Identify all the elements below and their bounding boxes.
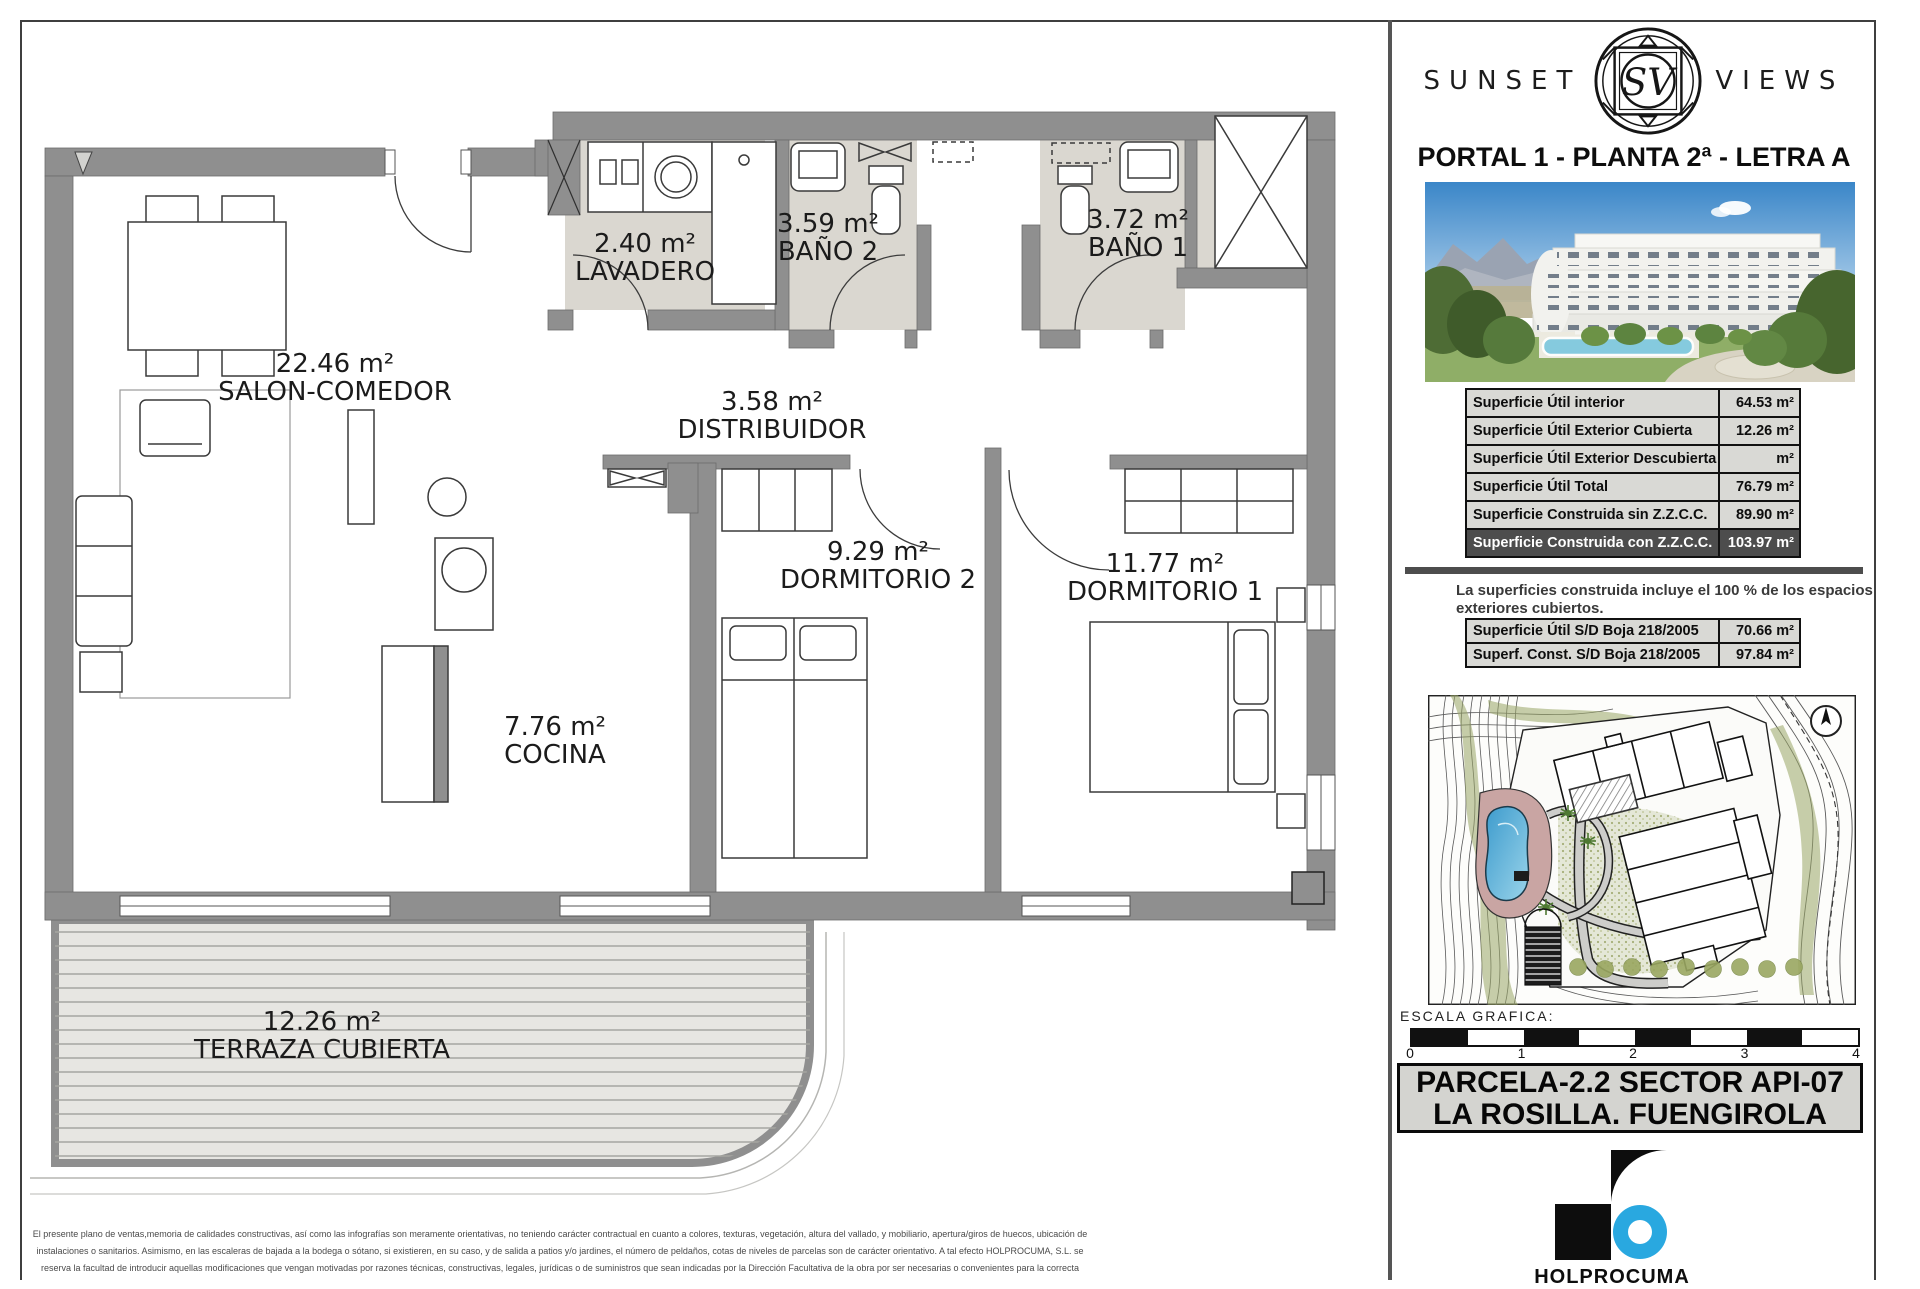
room-label-area: 7.76 m² [504, 712, 606, 742]
room-label-name: DISTRIBUIDOR [678, 415, 867, 445]
room-label-area: 11.77 m² [1106, 549, 1224, 579]
table-row: Superf. Const. S/D Boja 218/2005 97.84 m… [1467, 644, 1799, 666]
disclaimer-line: instalaciones o sanitarios. Asimismo, en… [30, 1243, 1090, 1260]
sunset-views-logo-icon: SV [1593, 26, 1703, 136]
scale-tick: 0 [1406, 1045, 1414, 1061]
table-row-highlight: Superficie Construida con Z.Z.C.C. 103.9… [1467, 530, 1799, 556]
room-label-area: 3.59 m² [777, 209, 879, 239]
room-label-area: 9.29 m² [827, 537, 929, 567]
disclaimer-line: El presente plano de ventas,memoria de c… [30, 1226, 1090, 1243]
note-line: La superficies construida incluye el 100… [1456, 582, 1873, 600]
surface-label: Superficie Construida sin Z.Z.C.C. [1467, 502, 1720, 528]
surface-value: 70.66 m² [1720, 620, 1799, 642]
room-label-name: COCINA [504, 740, 606, 770]
table-row: Superficie Útil interior 64.53 m² [1467, 390, 1799, 416]
table-row: Superficie Construida sin Z.Z.C.C. 89.90… [1467, 502, 1799, 528]
room-label-name: LAVADERO [575, 257, 715, 287]
surface-value: 12.26 m² [1720, 418, 1799, 444]
construction-note: La superficies construida incluye el 100… [1456, 582, 1873, 618]
pool-area [1476, 789, 1552, 918]
scale-tick: 3 [1741, 1045, 1749, 1061]
surface-label: Superf. Const. S/D Boja 218/2005 [1467, 644, 1720, 666]
room-label-area: 12.26 m² [263, 1007, 381, 1037]
surface-value: 76.79 m² [1720, 474, 1799, 500]
compass-icon [1811, 706, 1841, 736]
parcel-title-box: PARCELA-2.2 SECTOR API-07 LA ROSILLA. FU… [1397, 1063, 1863, 1133]
site-plan-map [1428, 695, 1856, 1005]
brand-header: SUNSET SV VIEWS [1392, 22, 1876, 140]
table-row: Superficie Útil Exterior Descubierta m² [1467, 446, 1799, 472]
surface-value: m² [1720, 446, 1799, 472]
svg-text:SV: SV [1622, 60, 1679, 104]
brand-name-left: SUNSET [1424, 66, 1582, 96]
boja-table: Superficie Útil S/D Boja 218/2005 70.66 … [1465, 618, 1801, 668]
room-label-name: TERRAZA CUBIERTA [193, 1035, 450, 1065]
table-row: Superficie Útil S/D Boja 218/2005 70.66 … [1467, 620, 1799, 642]
scale-tick: 2 [1629, 1045, 1637, 1061]
room-label-area: 3.58 m² [721, 387, 823, 417]
surface-value: 97.84 m² [1720, 644, 1799, 666]
disclaimer-line: reserva la facultad de introducir aquell… [30, 1260, 1090, 1277]
room-label-name: DORMITORIO 2 [780, 565, 976, 595]
surface-value: 103.97 m² [1720, 530, 1799, 556]
room-label-name: BAÑO 1 [1088, 231, 1188, 263]
surface-label: Superficie Útil interior [1467, 390, 1720, 416]
room-label-area: 3.72 m² [1087, 205, 1189, 235]
parcel-line: PARCELA-2.2 SECTOR API-07 [1400, 1067, 1860, 1099]
holprocuma-logo-icon [1555, 1150, 1669, 1262]
room-label-area: 2.40 m² [594, 229, 696, 259]
scale-ticks: 0 1 2 3 4 [1410, 1045, 1856, 1063]
surface-label: Superficie Útil Exterior Cubierta [1467, 418, 1720, 444]
room-label-name: SALON-COMEDOR [218, 377, 452, 407]
scale-tick: 4 [1852, 1045, 1860, 1061]
surface-label: Superficie Útil Exterior Descubierta [1467, 446, 1720, 472]
building-render-image [1425, 182, 1855, 382]
unit-title: PORTAL 1 - PLANTA 2ª - LETRA A [1392, 142, 1876, 173]
floorplan-drawing: 22.46 m² SALON-COMEDOR 2.40 m² LAVADERO … [20, 20, 1388, 1280]
note-line: exteriores cubiertos. [1456, 600, 1873, 618]
surface-value: 64.53 m² [1720, 390, 1799, 416]
section-divider [1405, 567, 1863, 574]
developer-name: HOLPROCUMA [1392, 1266, 1832, 1289]
room-label-area: 22.46 m² [276, 349, 394, 379]
surface-label: Superficie Construida con Z.Z.C.C. [1467, 530, 1720, 556]
parcel-line: LA ROSILLA. FUENGIROLA [1400, 1099, 1860, 1131]
surface-table: Superficie Útil interior 64.53 m² Superf… [1465, 388, 1801, 558]
tree-row [1570, 959, 1803, 978]
surface-value: 89.90 m² [1720, 502, 1799, 528]
scale-tick: 1 [1518, 1045, 1526, 1061]
brand-name-right: VIEWS [1715, 66, 1844, 96]
legal-disclaimer: El presente plano de ventas,memoria de c… [30, 1226, 1090, 1277]
surface-label: Superficie Útil Total [1467, 474, 1720, 500]
scale-label: ESCALA GRAFICA: [1400, 1008, 1554, 1024]
table-row: Superficie Útil Exterior Cubierta 12.26 … [1467, 418, 1799, 444]
surface-label: Superficie Útil S/D Boja 218/2005 [1467, 620, 1720, 642]
room-label-name: BAÑO 2 [778, 235, 878, 267]
table-row: Superficie Útil Total 76.79 m² [1467, 474, 1799, 500]
info-panel: SUNSET SV VIEWS PORTAL 1 - PLANTA 2ª - L… [1392, 22, 1876, 1280]
room-label-name: DORMITORIO 1 [1067, 577, 1263, 607]
